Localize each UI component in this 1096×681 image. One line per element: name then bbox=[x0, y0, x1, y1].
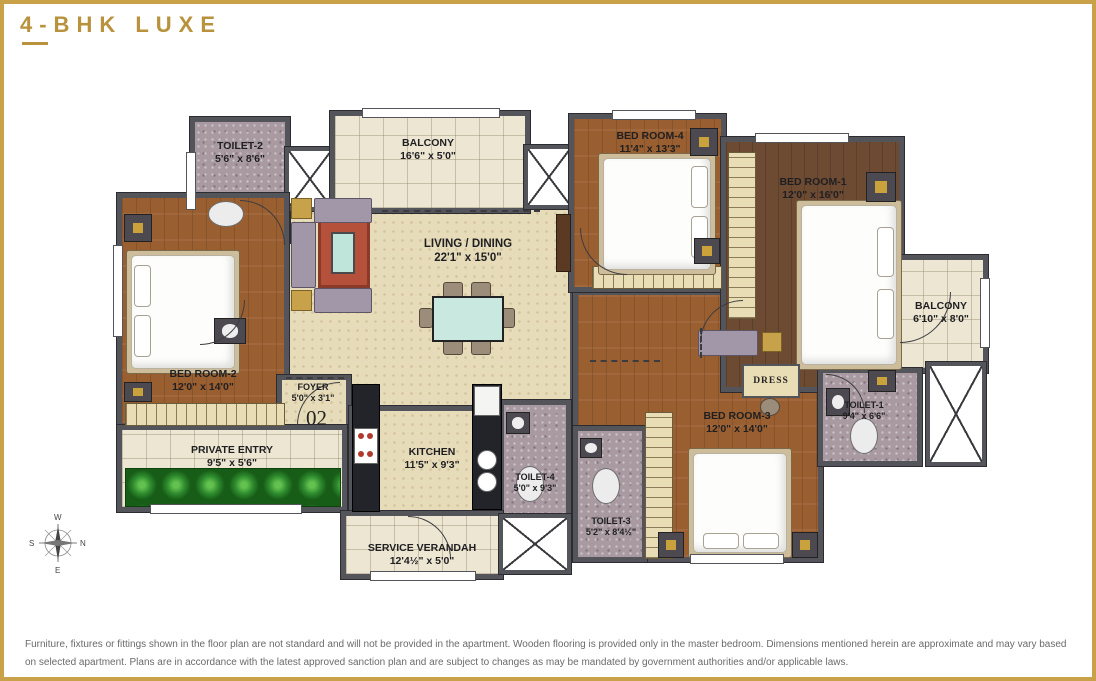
compass-icon: W N E S bbox=[28, 510, 88, 576]
coffee-table bbox=[331, 232, 355, 274]
dining-chair bbox=[419, 308, 433, 328]
dress-label: DRESS bbox=[753, 376, 789, 386]
dress-table: DRESS bbox=[742, 364, 800, 398]
basin-toilet-4 bbox=[506, 412, 530, 434]
side-table bbox=[291, 198, 312, 219]
side-table bbox=[291, 290, 312, 311]
wc-toilet-2 bbox=[208, 201, 244, 227]
window bbox=[612, 110, 696, 120]
window bbox=[150, 504, 302, 514]
svg-text:E: E bbox=[55, 566, 60, 575]
page-title: 4-BHK LUXE bbox=[20, 12, 222, 38]
label-bedroom-1: BED ROOM-112'0" x 16'0" bbox=[758, 176, 868, 201]
kitchen-sink bbox=[477, 472, 497, 492]
sliding-door bbox=[700, 328, 702, 358]
label-balcony-top: BALCONY16'6" x 5'0" bbox=[368, 137, 488, 162]
label-kitchen: KITCHEN11'5" x 9'3" bbox=[392, 446, 472, 471]
kitchen-sink bbox=[477, 450, 497, 470]
shaft-top-right bbox=[524, 145, 574, 209]
svg-text:S: S bbox=[29, 539, 34, 548]
window bbox=[113, 245, 123, 337]
wc-toilet-3 bbox=[592, 468, 620, 504]
nightstand bbox=[694, 238, 720, 264]
wc-toilet-1 bbox=[850, 418, 878, 454]
unit-number: 02 bbox=[306, 406, 327, 431]
window bbox=[690, 554, 784, 564]
wardrobe-bedroom-1 bbox=[728, 152, 756, 319]
label-bedroom-2: BED ROOM-212'0" x 14'0" bbox=[148, 368, 258, 393]
side-table bbox=[762, 332, 782, 352]
window bbox=[370, 571, 476, 581]
window bbox=[186, 152, 196, 210]
nightstand bbox=[658, 532, 684, 558]
nightstand bbox=[866, 172, 896, 202]
nightstand bbox=[792, 532, 818, 558]
disclaimer-text: Furniture, fixtures or fittings shown in… bbox=[25, 636, 1073, 671]
window bbox=[362, 108, 500, 118]
label-private-entry: PRIVATE ENTRY9'5" x 5'6" bbox=[172, 444, 292, 469]
label-bedroom-4: BED ROOM-411'4" x 13'3" bbox=[595, 130, 705, 155]
nightstand bbox=[868, 370, 896, 392]
label-living-dining: LIVING / DINING22'1" x 15'0" bbox=[408, 238, 528, 266]
window bbox=[755, 133, 849, 143]
label-toilet-4: TOILET-45'0" x 9'3" bbox=[500, 472, 570, 494]
label-toilet-1: TOILET-19'4" x 6'6" bbox=[826, 400, 902, 422]
sliding-door bbox=[286, 377, 344, 379]
refrigerator bbox=[474, 386, 500, 416]
sofa bbox=[314, 288, 372, 313]
shaft-right bbox=[926, 362, 986, 466]
tv-unit bbox=[556, 214, 571, 272]
bed-bedroom-1 bbox=[796, 200, 902, 370]
sofa bbox=[291, 222, 316, 288]
sliding-door bbox=[470, 210, 540, 212]
nightstand bbox=[124, 214, 152, 242]
planter-strip bbox=[125, 468, 341, 507]
svg-text:N: N bbox=[80, 539, 86, 548]
wardrobe-bedroom-2 bbox=[125, 403, 285, 426]
sliding-door bbox=[382, 210, 452, 212]
label-service-verandah: SERVICE VERANDAH12'4½" x 5'0" bbox=[360, 542, 484, 567]
label-toilet-2: TOILET-25'6" x 8'6" bbox=[200, 140, 280, 165]
bed-bedroom-3 bbox=[688, 448, 792, 558]
floor-plan-page: 4-BHK LUXE bbox=[0, 0, 1096, 681]
sliding-door bbox=[590, 360, 660, 362]
title-underline bbox=[22, 42, 48, 45]
dining-table bbox=[432, 296, 504, 342]
label-foyer: FOYER5'0" x 3'1" bbox=[280, 382, 346, 404]
label-balcony-right: BALCONY6'10" x 8'0" bbox=[898, 300, 984, 325]
svg-text:W: W bbox=[54, 513, 62, 522]
basin-toilet-3 bbox=[580, 438, 602, 458]
label-toilet-3: TOILET-35'2" x 8'4½" bbox=[578, 516, 644, 538]
stove bbox=[354, 428, 378, 464]
shaft-bottom bbox=[499, 514, 571, 574]
label-bedroom-3: BED ROOM-312'0" x 14'0" bbox=[682, 410, 792, 435]
sofa bbox=[314, 198, 372, 223]
